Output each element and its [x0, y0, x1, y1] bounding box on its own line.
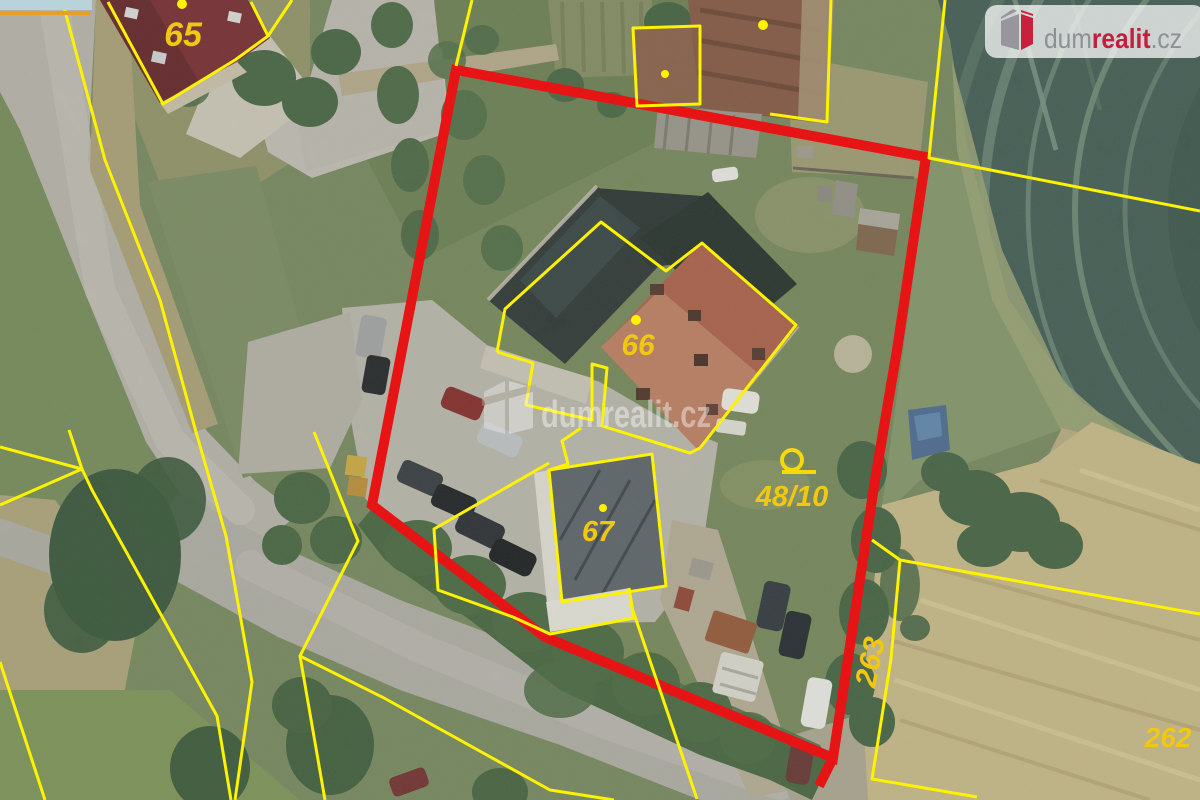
- svg-text:67: 67: [582, 516, 616, 548]
- svg-text:66: 66: [621, 329, 655, 362]
- svg-text:dumrealit.cz: dumrealit.cz: [1044, 23, 1182, 54]
- svg-text:65: 65: [164, 16, 203, 54]
- svg-text:262: 262: [1144, 722, 1192, 753]
- svg-text:dumrealit.cz: dumrealit.cz: [541, 394, 711, 436]
- svg-text:48/10: 48/10: [755, 481, 829, 513]
